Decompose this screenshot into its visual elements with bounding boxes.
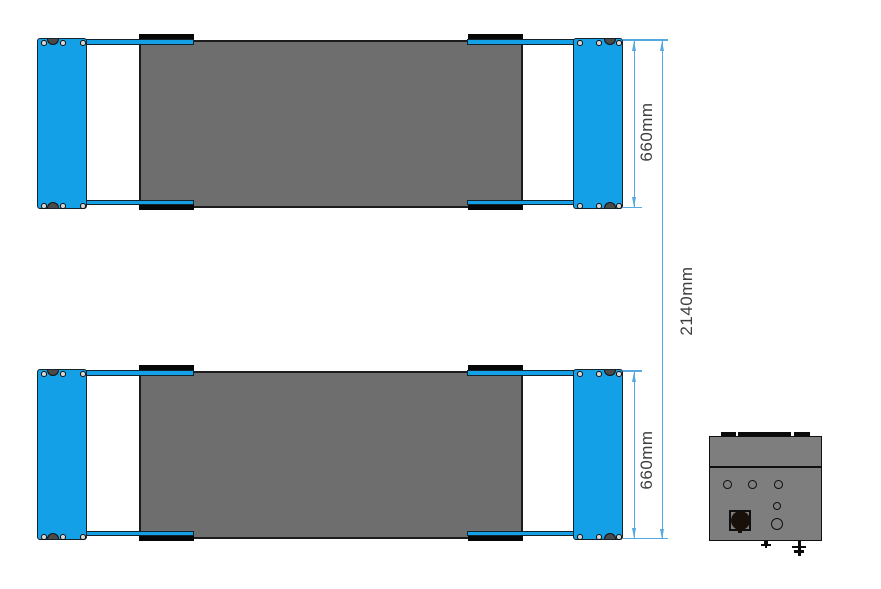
mount-bar-top-left [139, 34, 194, 39]
indicator-hole [723, 480, 732, 489]
bolt-hole [60, 203, 66, 209]
locating-notch [47, 39, 59, 45]
dim-arrow-down [632, 528, 636, 538]
bolt-hole [616, 40, 622, 46]
bolt-hole [60, 371, 66, 377]
drain-fitting-bar-narrow [794, 550, 804, 553]
bolt-hole [616, 371, 622, 377]
rotary-switch-lever [738, 520, 742, 533]
platform-deck [139, 371, 524, 539]
slide-rail-top-right [467, 370, 575, 376]
dimension-line-2140-overall [662, 41, 663, 540]
dimension-line-660-upper [634, 41, 635, 208]
dim-arrow-down [632, 197, 636, 207]
technical-drawing-canvas: 660mm 660mm 2140mm [0, 0, 881, 589]
slide-rail-top-left [86, 39, 194, 45]
end-plate-left [37, 369, 87, 540]
bolt-hole [596, 534, 602, 540]
bolt-hole [80, 40, 86, 46]
lower-platform-assembly [37, 369, 623, 544]
bolt-hole [41, 371, 47, 377]
bolt-hole [596, 203, 602, 209]
bolt-hole [60, 40, 66, 46]
slide-rail-top-left [86, 370, 194, 376]
bolt-hole [616, 534, 622, 540]
mount-bar-top-right [468, 365, 523, 370]
locating-notch [47, 370, 59, 376]
button-hole-large [771, 518, 783, 530]
mount-bar-top-left [139, 365, 194, 370]
locating-notch [604, 533, 616, 539]
dimension-label-660-upper: 660mm [637, 92, 657, 172]
mount-bar-top-right [468, 34, 523, 39]
indicator-hole [748, 480, 757, 489]
bolt-hole [596, 40, 602, 46]
bolt-hole [41, 40, 47, 46]
indicator-hole [773, 502, 781, 510]
mount-bar-bottom-right [468, 205, 523, 210]
mount-bar-bottom-right [468, 536, 523, 541]
locating-notch [47, 202, 59, 208]
end-plate-right [573, 38, 623, 209]
bolt-hole [577, 40, 583, 46]
locating-notch [604, 202, 616, 208]
locating-notch [47, 533, 59, 539]
bolt-hole [41, 203, 47, 209]
dim-arrow-up [632, 372, 636, 382]
dimension-line-660-lower [634, 372, 635, 539]
bolt-hole [80, 371, 86, 377]
bolt-hole [577, 203, 583, 209]
mount-bar-bottom-left [139, 536, 194, 541]
locating-notch [604, 39, 616, 45]
drain-fitting-bar-wide [792, 546, 806, 549]
box-fitting-nub [765, 546, 767, 548]
upper-platform-assembly [37, 38, 623, 213]
bolt-hole [577, 371, 583, 377]
dimension-label-2140-overall: 2140mm [677, 259, 697, 343]
control-box [709, 436, 822, 542]
bolt-hole [596, 371, 602, 377]
dim-arrow-down [660, 529, 664, 539]
mount-bar-bottom-left [139, 205, 194, 210]
indicator-hole [774, 480, 783, 489]
bolt-hole [80, 203, 86, 209]
bolt-hole [577, 534, 583, 540]
end-plate-left [37, 38, 87, 209]
dim-arrow-up [632, 41, 636, 51]
dimension-label-660-lower: 660mm [637, 420, 657, 500]
dim-arrow-up [660, 41, 664, 51]
end-plate-right [573, 369, 623, 540]
bolt-hole [60, 534, 66, 540]
slide-rail-top-right [467, 39, 575, 45]
bolt-hole [80, 534, 86, 540]
locating-notch [604, 370, 616, 376]
platform-deck [139, 40, 524, 208]
control-box-lid-edge [710, 466, 821, 468]
bolt-hole [616, 203, 622, 209]
bolt-hole [41, 534, 47, 540]
